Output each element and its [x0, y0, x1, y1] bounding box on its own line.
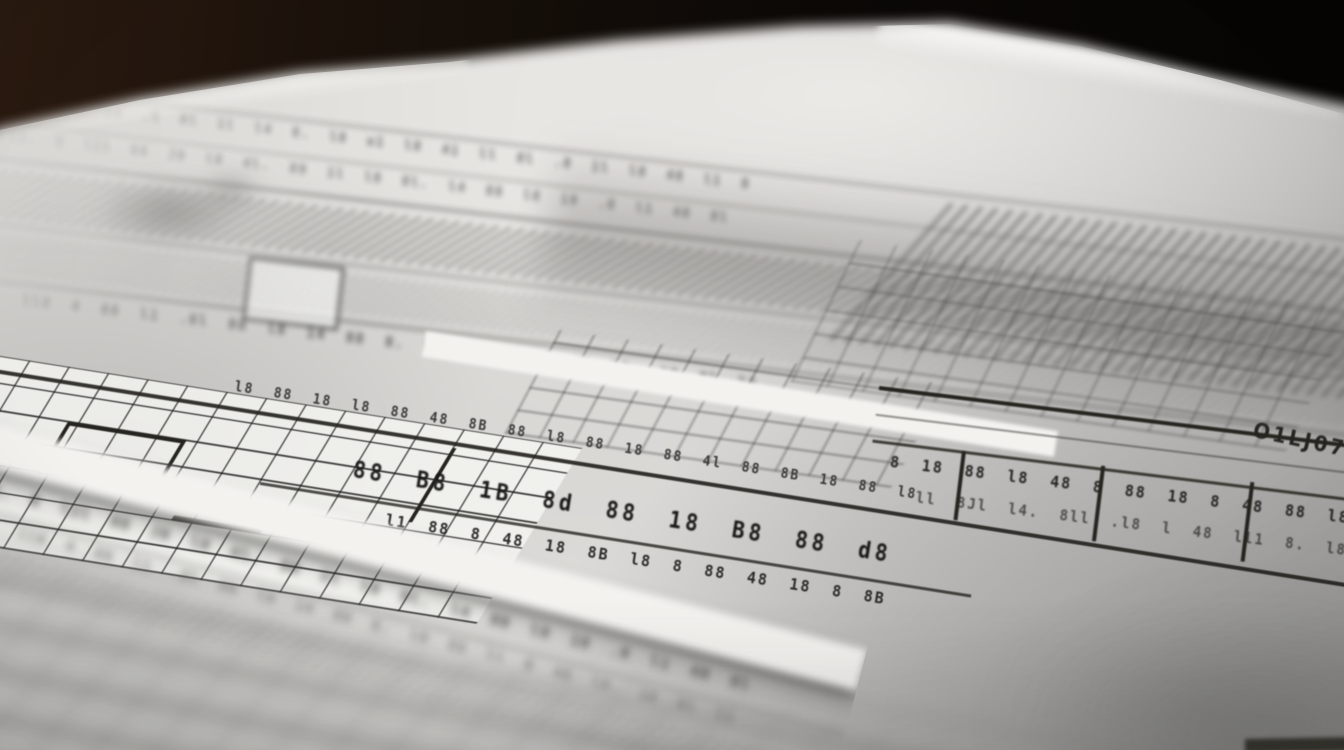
blur-blob-small [196, 168, 266, 212]
heavy-stroke [1241, 482, 1255, 562]
table-cell-box [242, 256, 345, 330]
photo-scene: il l8. 4b ll 18 .l 8l 1l l4 8. l8 u1 l8 … [0, 0, 1344, 750]
printed-content-clip: il l8. 4b ll 18 .l 8l 1l l4 8. l8 u1 l8 … [0, 0, 1344, 750]
bottom-corner-sliver [1245, 737, 1344, 750]
corner-shadow [1000, 600, 1344, 750]
